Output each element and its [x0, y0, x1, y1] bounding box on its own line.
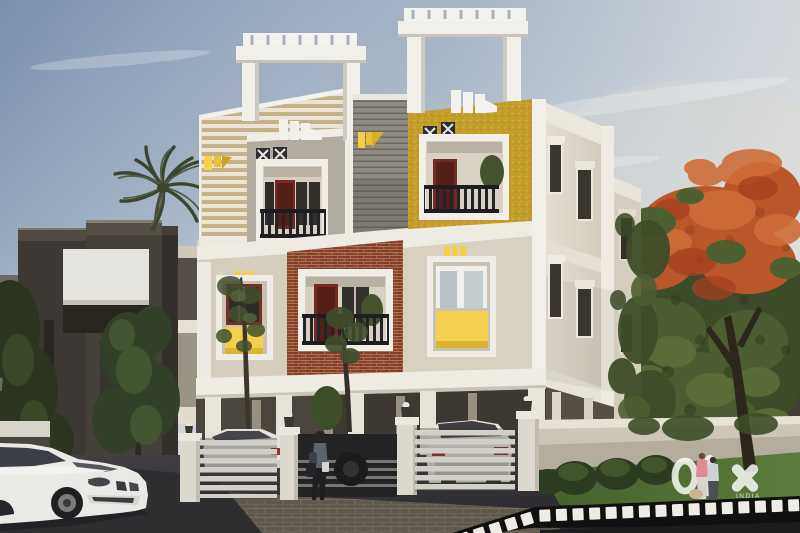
svg-text:INDIA: INDIA	[736, 493, 761, 500]
